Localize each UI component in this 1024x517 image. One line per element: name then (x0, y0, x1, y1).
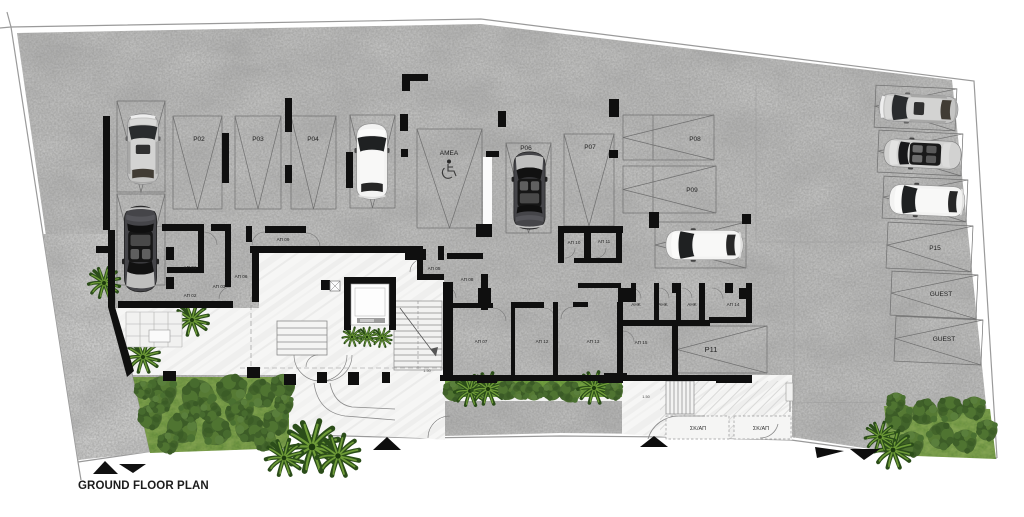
svg-text:P08: P08 (689, 136, 701, 143)
svg-text:GUEST: GUEST (933, 336, 955, 343)
svg-text:AΠ 14: AΠ 14 (727, 302, 740, 307)
svg-text:P06: P06 (520, 145, 532, 152)
svg-text:AHK: AHK (658, 302, 668, 307)
svg-text:AΠ 13: AΠ 13 (587, 339, 600, 344)
svg-text:GROUND FLOOR PLAN: GROUND FLOOR PLAN (78, 480, 209, 492)
svg-text:AΠ 02: AΠ 02 (184, 293, 197, 298)
svg-text:1.50: 1.50 (423, 369, 430, 373)
svg-text:AΠ 07: AΠ 07 (475, 339, 488, 344)
svg-text:AΠ 03: AΠ 03 (213, 284, 226, 289)
svg-text:AMEA: AMEA (440, 150, 459, 157)
svg-text:AΠ 12: AΠ 12 (536, 339, 549, 344)
svg-text:AHK: AHK (687, 302, 697, 307)
svg-text:P09: P09 (686, 187, 698, 194)
svg-text:P07: P07 (584, 144, 596, 151)
svg-text:P11: P11 (705, 345, 718, 354)
svg-text:AΠ 15: AΠ 15 (635, 340, 648, 345)
svg-text:P15: P15 (929, 245, 941, 252)
svg-text:ΣΚ/ΑΠ: ΣΚ/ΑΠ (753, 426, 769, 432)
svg-text:AΠ 05: AΠ 05 (428, 266, 441, 271)
svg-text:GUEST: GUEST (930, 291, 952, 298)
svg-text:AΠ 08: AΠ 08 (461, 277, 474, 282)
svg-text:AΠ 11: AΠ 11 (598, 239, 611, 244)
svg-text:1.50: 1.50 (642, 395, 649, 399)
svg-text:AΠ 10: AΠ 10 (568, 240, 581, 245)
svg-text:AHK: AHK (631, 302, 641, 307)
svg-text:ΣΚ/ΑΠ: ΣΚ/ΑΠ (690, 426, 706, 432)
svg-text:P03: P03 (252, 136, 264, 143)
svg-text:P02: P02 (193, 136, 205, 143)
svg-text:AΠ 09: AΠ 09 (277, 237, 290, 242)
svg-text:P04: P04 (307, 136, 319, 143)
svg-text:AΠ 01: AΠ 01 (184, 265, 197, 270)
svg-text:AΠ 06: AΠ 06 (235, 274, 248, 279)
